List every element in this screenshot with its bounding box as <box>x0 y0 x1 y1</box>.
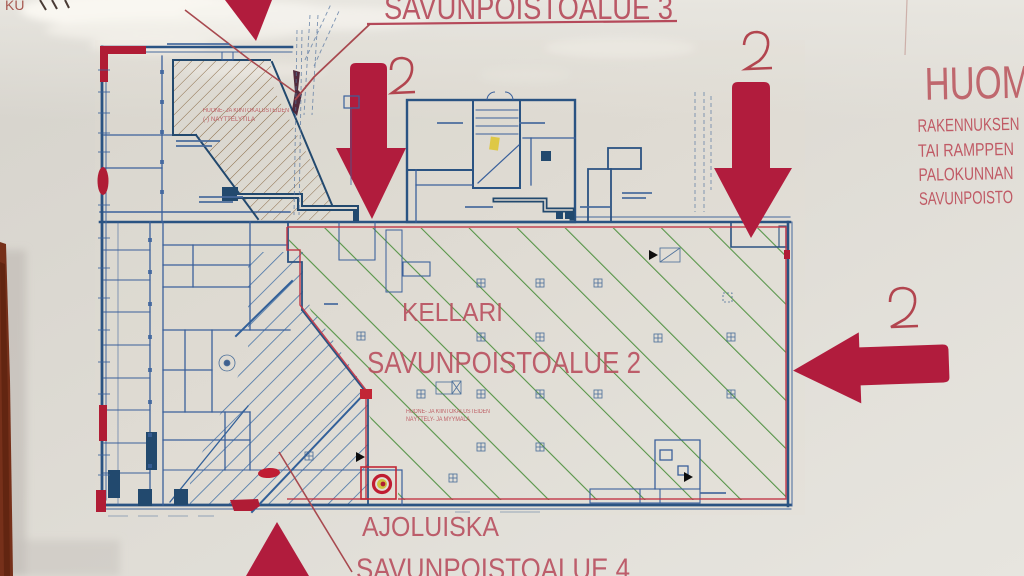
svg-text:HUONE- JA KIINTOKALUSTEIDEN: HUONE- JA KIINTOKALUSTEIDEN <box>203 108 289 114</box>
svg-text:RAKENNUKSEN: RAKENNUKSEN <box>917 114 1019 136</box>
svg-text:HUOM: HUOM <box>924 56 1024 110</box>
svg-text:SAVUNPOISTO: SAVUNPOISTO <box>919 187 1013 209</box>
svg-text:KELLARI: KELLARI <box>402 297 503 327</box>
svg-text:HUONE- JA KIINTOKALUSTEIDEN: HUONE- JA KIINTOKALUSTEIDEN <box>406 409 490 415</box>
svg-text:(-) NÄYTTELYTILA: (-) NÄYTTELYTILA <box>203 116 255 123</box>
svg-text:SAVUNPOISTOALUE 2: SAVUNPOISTOALUE 2 <box>367 345 641 380</box>
svg-text:AJOLUISKA: AJOLUISKA <box>362 511 499 542</box>
svg-text:TAI RAMPPEN: TAI RAMPPEN <box>918 139 1014 161</box>
svg-text:KU: KU <box>5 0 24 13</box>
svg-text:NÄYTTELY- JA MYYMÄLÄ: NÄYTTELY- JA MYYMÄLÄ <box>406 416 470 423</box>
svg-text:PALOKUNNAN: PALOKUNNAN <box>918 163 1013 185</box>
svg-text:SAVUNPOISTOALUE 4: SAVUNPOISTOALUE 4 <box>356 553 630 576</box>
